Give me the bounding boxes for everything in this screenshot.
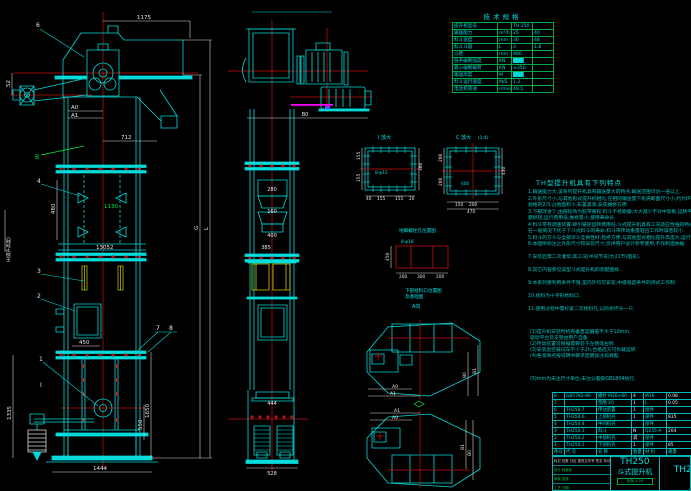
dim-p1-b1: B1 <box>472 368 478 374</box>
spec-cell: mm <box>498 51 512 58</box>
dim-p2-b0: B0 <box>467 450 473 456</box>
dim-p2-b1: B1 <box>460 444 466 450</box>
dim-a0: A0 <box>71 105 79 111</box>
bom-cell: TH250.7 <box>565 407 597 414</box>
balloon-4: 4 <box>37 178 41 185</box>
anchor-bolt-layout: 地脚螺栓孔位置图 8-φ18 450 200 300 200 下部给料口位置图 … <box>385 227 448 310</box>
spec-cell: 480 <box>512 51 533 58</box>
bom-cell: 下部机壳 <box>597 442 632 449</box>
spec-cell: 48 <box>533 37 554 44</box>
note-line: 7.安装后需二次灌浆,其工况(中间节号)为21节(图号). <box>528 255 640 261</box>
dim-d2-600: 600 <box>461 181 469 187</box>
note-line: 规格的2/3,占地面积小,布置紧凑,安装维修方便. <box>528 203 628 209</box>
spec-cell: ███ <box>512 58 533 65</box>
spec-cell <box>533 51 554 58</box>
spec-cell: 料斗运行速度 <box>453 79 498 86</box>
note-subline: (4)各润滑点按说明书要求定期加注润滑脂. <box>530 354 620 360</box>
spec-cell: 链条破断强度 <box>453 58 498 65</box>
centerlines <box>10 12 198 470</box>
bom-cell: L <box>644 400 667 407</box>
cv-buckets-yellow <box>252 264 290 290</box>
detail-C-scale: (1:4) <box>478 135 489 141</box>
dim-1650: 1650 <box>145 404 151 418</box>
dim-L: L <box>204 226 210 230</box>
spec-cell: mm <box>498 37 512 44</box>
bom-cell: 6 <box>553 407 565 414</box>
dim-p1-b0: B0 <box>462 372 468 378</box>
bom-cell <box>667 407 691 414</box>
dim-an-450: 450 <box>385 253 391 261</box>
dim-d1-inner: 8-φ12 <box>375 170 388 176</box>
head-plan-view-1 <box>367 320 480 407</box>
casing-column <box>64 97 140 456</box>
bom-cell: TH250.4 <box>565 421 597 428</box>
bom-cell <box>667 421 691 428</box>
bom-cell: 4 <box>632 393 644 400</box>
dim-d1-b155b: 155 <box>395 196 403 202</box>
bom-row: 7垫圈 201L0.05 <box>553 400 691 407</box>
dim-d1-360: 360 <box>418 163 424 171</box>
bom-cell: 1 <box>632 407 644 414</box>
note-line: 3.下部改进了,由链轮改为胶带重轮,料斗不易跑偏,大大减少不对中现象,运转平稳, <box>528 210 691 216</box>
sig-row-2: 审核 批准 <box>553 475 610 484</box>
dim-160: 160 <box>267 209 277 215</box>
bom-cell <box>565 400 597 407</box>
cv-head-drive <box>243 29 372 111</box>
bom-cell: 5 <box>553 414 565 421</box>
dim-an-300: 300 <box>417 274 425 280</box>
boot-section <box>46 358 158 462</box>
bom-cell: 3 <box>553 428 565 435</box>
bom-cell: 料斗 <box>597 428 632 435</box>
discharge-spout <box>161 116 177 128</box>
dim-d2-150: 150 <box>455 202 463 208</box>
bom-table: 8GB5782-86螺栓 M20×804M160.08 7垫圈 201L0.05… <box>552 392 691 456</box>
spec-cell: 30 <box>512 37 533 44</box>
bom-cell: 部件 <box>644 435 667 442</box>
notes-heading: TH型提升机具有下列特点 <box>536 177 622 187</box>
dim-280: 280 <box>267 187 277 193</box>
product-name: 斗式提升机 <box>611 468 659 477</box>
dim-d1-155a: 155 <box>356 152 362 160</box>
section-I-mark: I <box>40 382 42 389</box>
dim-a1: A1 <box>71 113 78 119</box>
bom-cell: TH250.6 <box>565 414 597 421</box>
spec-cell: 料斗宽度 <box>453 37 498 44</box>
bom-cell: M16 <box>644 393 667 400</box>
bom-cell: 2 <box>553 435 565 442</box>
dim-B0: B0 <box>302 112 309 118</box>
dim-p2-a0: A0 <box>392 415 398 421</box>
spec-row: 料斗运行速度M/S1.2 <box>453 79 554 86</box>
spec-table: 提升机型号TH 250 输送能力m³/h2540 料斗宽度mm3048 料斗斗容… <box>452 22 554 93</box>
chain-guides <box>82 266 123 290</box>
balloon-7: 7 <box>156 325 160 332</box>
bom-row: 6TH250.7传动装置1组件 <box>553 407 691 414</box>
scale-label: 比例 1:20 <box>617 478 653 485</box>
bom-cell: 螺栓 M20×80 <box>597 393 632 400</box>
bom-cell: 204 <box>667 428 691 435</box>
dim-444: 444 <box>267 401 277 407</box>
spec-cell: m³/h <box>498 30 512 37</box>
takeup-counterweight <box>28 414 94 460</box>
spec-cell <box>533 23 554 30</box>
dim-d1-b155a: 155 <box>377 196 385 202</box>
dim-G: G <box>194 226 200 230</box>
title-right-cell: TH250 <box>660 457 690 490</box>
bom-cell: 8 <box>553 393 565 400</box>
section-B-label: B <box>35 154 39 161</box>
note-line: 5.料斗的方斗与全部深斗互换性好,检修方便,与其他型式相比提升高度大,运行平稳. <box>528 236 691 242</box>
note-line: 6.本图所标注之外形尺寸和安装尺寸,仅供用户设计参考使用,不作制造依据. <box>528 242 686 248</box>
bom-cell: 4 <box>553 421 565 428</box>
bom-cell: 部件 <box>644 442 667 449</box>
dim-d2-200a: 200 <box>438 154 444 162</box>
bom-header-cell: 名 称 <box>597 449 632 456</box>
balloon-6: 6 <box>36 22 40 29</box>
detail-I-label: I 放大 <box>378 134 391 141</box>
bom-cell: 0.08 <box>667 393 691 400</box>
spec-cell: 输送能力 <box>453 30 498 37</box>
spec-cell: 最小破断载荷 <box>453 65 498 72</box>
bom-cell: 传动装置 <box>597 407 632 414</box>
dim-52: 52 <box>6 80 12 87</box>
note-line: 11.使用过程中需拧紧二次给料孔,以防损坏头一只. <box>528 307 635 313</box>
balloon-8: 8 <box>169 325 173 332</box>
note-line: 8.其它内容参见该型斗式提升机的装配图样. <box>528 268 620 274</box>
spec-cell <box>533 72 554 79</box>
spec-row: 斗距mm480 <box>453 51 554 58</box>
center-view-side-elevation <box>228 12 372 470</box>
dim-550: 550 <box>138 419 144 430</box>
bom-cell: 85 <box>667 442 691 449</box>
spec-row: 料斗宽度mm3048 <box>453 37 554 44</box>
balloon-2: 2 <box>37 293 41 300</box>
bom-row: 4TH250.4中间机壳部件 <box>553 421 691 428</box>
spec-table-title: 技术规格 <box>452 11 553 21</box>
note-line: 在一般情况下优于下斗式料斗的寿命,料斗带传动重量轻且工作时噪音较小. <box>528 229 685 235</box>
motor-base-highlight <box>291 104 333 106</box>
balloon-1: 1 <box>39 356 43 363</box>
bom-cell: TH250.3 <box>565 428 597 435</box>
revision-header: 标记 处数 分区 更改文件号 签名 年月日 <box>553 457 610 466</box>
dim-d1-155b: 155 <box>356 174 362 182</box>
spec-cell: ███ <box>512 72 533 79</box>
spec-cell: 25 <box>512 30 533 37</box>
bom-cell <box>632 421 644 428</box>
dim-450: 450 <box>79 340 90 346</box>
detail-C-label: C 放大 <box>456 134 471 141</box>
bom-cell: 组件 <box>644 407 667 414</box>
bom-cell: 部件 <box>644 414 667 421</box>
note-line: 9.本系列受利用条件不限,室内外均可安装,中级强度条件的闭式工作制. <box>528 281 676 287</box>
dim-p2-a1: A1 <box>394 408 400 414</box>
base-plate <box>52 456 152 460</box>
spec-cell: 3 <box>512 44 533 51</box>
anchor-bolts: 8-φ18 <box>401 239 414 245</box>
dim-400: 400 <box>267 233 277 239</box>
bom-row: 8GB5782-86螺栓 M20×804M160.08 <box>553 393 691 400</box>
cv-dim-text: B0 280 160 400 385 444 528 <box>261 112 308 477</box>
bom-cell: 1 <box>553 442 565 449</box>
bom-cell: 1 <box>632 414 644 421</box>
bom-cell: 中部机壳 <box>597 435 632 442</box>
spec-cell <box>533 65 554 72</box>
spec-cell: 1.8 <box>533 44 554 51</box>
bom-header-cell: 数量 <box>632 449 644 456</box>
spec-row: 输送高度M███ <box>453 72 554 79</box>
dim-d2-200b: 200 <box>438 178 444 186</box>
cad-canvas: 1175 712 52 A0 A1 480 13052 450 1335 165… <box>0 0 691 491</box>
title-block: 标记 处数 分区 更改文件号 签名 年月日 设计 标准化 审核 批准 工艺 日期… <box>552 456 691 491</box>
title-main: TH250 斗式提升机 比例 1:20 <box>611 457 660 490</box>
dim-d2-200c: 200 <box>469 202 477 208</box>
takeup-screw-right <box>277 426 293 455</box>
spec-cell <box>498 23 512 30</box>
bom-cell: N <box>632 428 644 435</box>
bom-cell: TH250.1 <box>565 442 597 449</box>
note-line: 10.给料为十字形给料口. <box>528 294 580 300</box>
spec-cell: r/min <box>498 86 512 93</box>
dim-480: 480 <box>51 203 57 214</box>
lv-leaders <box>40 29 177 406</box>
lv-dim-text: 1175 712 52 A0 A1 480 13052 450 1335 165… <box>5 15 210 472</box>
model-number: TH250 <box>611 457 659 468</box>
spec-cell: 输送高度 <box>453 72 498 79</box>
bom-row: 1TH250.1下部机壳1部件85 <box>553 442 691 449</box>
bom-header-cell: 代 号 <box>565 449 597 456</box>
spec-cell: M <box>498 72 512 79</box>
spec-row: 提升机型号TH 250 <box>453 23 554 30</box>
note-line: 磨损轻,运行费用低,维修量小,使用寿命长. <box>528 216 616 222</box>
bom-cell: 中间机壳 <box>597 421 632 428</box>
takeup-screw-left <box>254 426 270 455</box>
spec-row: 电动机转速r/min48.5 <box>453 86 554 93</box>
detail-C-text: C 放大 (1:4) 200 200 430 150 200 470 600 <box>438 134 507 215</box>
detail-C-flange <box>442 143 504 209</box>
note-line: 2.外形尺寸小,与其他形式提升机相比,在相同输送量下机壳断面尺寸小,约为环链式同 <box>528 197 691 203</box>
sig-row-3: 工艺 日期 <box>553 484 610 491</box>
bom-cell: TH250.2 <box>565 435 597 442</box>
detail-I-text: I 放大 360 155 155 40 155 155 20 8-φ12 <box>356 134 424 202</box>
spec-cell: 40 <box>533 30 554 37</box>
bom-cell <box>667 435 691 442</box>
dim-p1-a0: A0 <box>392 384 398 390</box>
spec-cell: 提升机型号 <box>453 23 498 30</box>
dim-1335: 1335 <box>7 406 13 420</box>
spec-row: 链条破断强度KN███ <box>453 58 554 65</box>
bom-cell: GB5782-86 <box>565 393 597 400</box>
spec-row: 料斗斗容L31.8 <box>453 44 554 51</box>
detail-I-flange <box>360 146 420 196</box>
dim-d1-b20: 20 <box>409 196 415 202</box>
bom-cell: 上部机壳 <box>597 414 632 421</box>
feed-view-A: A向 <box>412 303 420 310</box>
spec-cell <box>533 79 554 86</box>
bom-cell: Q235-A <box>644 428 667 435</box>
bom-header-cell: 件号 <box>553 449 565 456</box>
spec-cell: L <box>498 44 512 51</box>
spec-cell <box>533 86 554 93</box>
bom-cell: 7 <box>553 400 565 407</box>
dim-an-200a: 200 <box>399 274 407 280</box>
bom-cell: 袋 <box>632 435 644 442</box>
dim-d2-430: 430 <box>501 167 507 175</box>
dim-1175: 1175 <box>137 15 151 21</box>
dim-385: 385 <box>261 245 271 251</box>
spec-cell: 48.5 <box>512 86 533 93</box>
spec-cell: KN <box>498 58 512 65</box>
dim-1130: 1130 <box>104 204 118 210</box>
spec-cell: 电动机转速 <box>453 86 498 93</box>
spec-cell <box>533 58 554 65</box>
spec-cell: M/S <box>498 79 512 86</box>
balloon-3: 3 <box>37 268 41 275</box>
bom-row: 3TH250.3料斗NQ235-A204 <box>553 428 691 435</box>
bom-row: 5TH250.6上部机壳1部件835 <box>553 414 691 421</box>
dim-H-label: H(提升高度) <box>5 237 12 262</box>
bom-cell: 垫圈 20 <box>597 400 632 407</box>
anchor-title: 地脚螺栓孔位置图 <box>399 227 436 234</box>
dim-1444: 1444 <box>93 466 107 472</box>
bom-cell: 0.05 <box>667 400 691 407</box>
bom-header-cell: 重量 <box>667 449 691 456</box>
spec-cell: KN <box>498 65 512 72</box>
sig-row-1: 设计 标准化 <box>553 466 610 475</box>
bom-cell: 1 <box>632 442 644 449</box>
bom-cell: 835 <box>667 414 691 421</box>
left-view-front-elevation <box>5 12 212 472</box>
dim-p1-a1: A1 <box>390 391 396 397</box>
spec-row: 输送能力m³/h2540 <box>453 30 554 37</box>
drive-bracket <box>13 78 87 105</box>
spec-cell: 料斗斗容 <box>453 44 498 51</box>
bom-cell: 1 <box>632 400 644 407</box>
spec-cell: TH 250 <box>512 23 533 30</box>
revision-block: 标记 处数 分区 更改文件号 签名 年月日 设计 标准化 审核 批准 工艺 日期 <box>553 457 611 490</box>
bom-cell: 部件 <box>644 421 667 428</box>
dim-an-200b: 200 <box>436 274 444 280</box>
spec-cell: 斗距 <box>453 51 498 58</box>
bom-header-row: 件号代 号名 称数量材 料重量 <box>553 449 691 456</box>
inspection-door <box>56 304 101 338</box>
dim-712: 712 <box>121 135 132 141</box>
note-line: 1.输送能力大,该系列提升机具有输送量大的特点,输送范围可达一倍以上. <box>528 190 681 196</box>
note-subline: (5)mm为未注尺寸单位,未注公差按GB1804执行. <box>530 377 636 383</box>
note-line: 4.料斗带有调速装置,牵引链轮运转费用低,斗式提升机具有工况适应性强的特点, <box>528 223 691 229</box>
model-number-right: TH250 <box>674 465 690 475</box>
bom-row: 2TH250.2中部机壳袋部件 <box>553 435 691 442</box>
dim-528: 528 <box>267 471 277 477</box>
dim-13052: 13052 <box>96 245 114 251</box>
middle-casing <box>58 175 146 250</box>
spec-row: 最小破断载荷KN≥350 <box>453 65 554 72</box>
spec-cell: 1.2 <box>512 79 533 86</box>
feed-label-2: 及基础图 <box>405 293 424 300</box>
dim-d1-b40: 40 <box>366 196 372 202</box>
spec-cell: ≥350 <box>512 65 533 72</box>
bom-header-cell: 材 料 <box>644 449 667 456</box>
feed-label-1: 下部给料口位置图 <box>405 287 442 294</box>
plan1-text: A0 A1 B0 B1 <box>390 368 478 397</box>
dim-d2-470: 470 <box>467 209 475 215</box>
